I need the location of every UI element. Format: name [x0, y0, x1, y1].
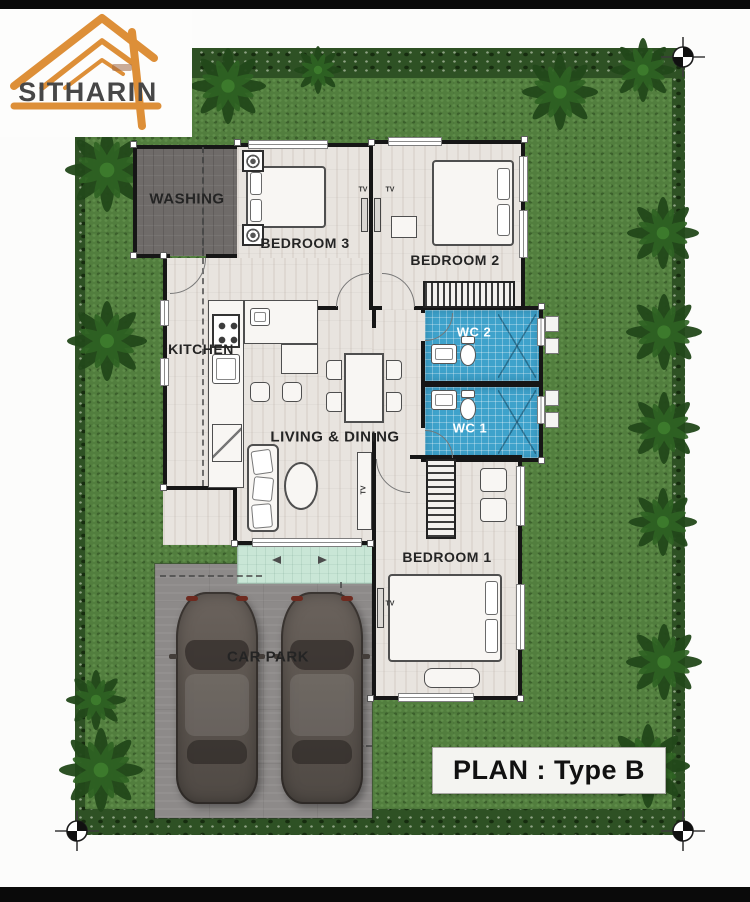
pillow — [485, 581, 498, 615]
car-icon — [176, 592, 258, 804]
roof-overhang-line — [160, 575, 262, 577]
wall — [206, 254, 237, 258]
car-rear-window — [292, 740, 352, 764]
window — [516, 584, 525, 650]
car-mirror — [169, 654, 177, 659]
plan-type-badge: PLAN : Type B — [432, 747, 666, 794]
wall-junction — [130, 252, 137, 259]
pillow — [250, 199, 262, 222]
toilet-icon — [461, 390, 475, 398]
room-label-bedroom2: BEDROOM 2 — [410, 252, 499, 268]
chair-icon — [386, 360, 402, 380]
ac-unit-icon — [545, 316, 559, 332]
window — [248, 140, 328, 149]
coffee-table-icon — [284, 462, 318, 510]
tv-label: TV — [386, 601, 395, 608]
window — [519, 210, 528, 258]
sink-basin — [435, 394, 453, 406]
kitchen-island — [281, 344, 318, 374]
wall — [425, 381, 539, 387]
wall-junction — [521, 136, 528, 143]
window — [516, 466, 525, 526]
car-rear-window — [187, 740, 247, 764]
slide-arrow-icon — [318, 556, 327, 564]
chair-icon — [326, 360, 342, 380]
wall-junction — [368, 139, 375, 146]
sink-basin — [216, 358, 236, 380]
window — [160, 358, 169, 386]
pillow — [485, 619, 498, 653]
tv-label: TV — [359, 187, 368, 194]
wall-junction — [234, 139, 241, 146]
sink-basin — [254, 312, 266, 322]
window — [537, 396, 545, 424]
sofa-icon — [247, 444, 279, 532]
kitchen-sink-icon — [212, 354, 240, 384]
toilet-icon — [460, 344, 476, 366]
toilet-icon — [460, 398, 476, 420]
bench-icon — [424, 668, 480, 688]
logo-small-text — [112, 64, 132, 71]
room-label-washing: WASHING — [149, 191, 224, 208]
ac-unit-icon — [545, 390, 559, 406]
wall — [133, 145, 237, 149]
slide-arrow-icon — [272, 556, 281, 564]
wall-junction — [160, 484, 167, 491]
dining-table-icon — [344, 353, 384, 423]
window — [388, 137, 442, 146]
tv-stand-icon — [391, 216, 417, 238]
room-label-wc2: WC 2 — [457, 325, 492, 340]
room-label-bedroom1: BEDROOM 1 — [402, 549, 491, 565]
plan-type-text: PLAN : Type B — [453, 755, 645, 786]
chair-icon — [326, 392, 342, 412]
terrace — [237, 545, 375, 584]
pillow — [497, 204, 510, 236]
floorplan-image: WASHING BEDROOM 3 BEDROOM 2 KITCHEN LIVI… — [0, 0, 750, 902]
room-label-bedroom3: BEDROOM 3 — [260, 235, 349, 251]
sliding-door-window — [252, 538, 362, 547]
tv-label: TV — [386, 187, 395, 194]
sink-icon — [431, 390, 457, 410]
pillow — [497, 168, 510, 200]
stool-icon — [250, 382, 270, 402]
chair-icon — [480, 498, 507, 522]
car-roof — [185, 674, 249, 736]
tv-label: TV — [361, 486, 368, 495]
sink-basin — [435, 348, 453, 360]
wall — [372, 306, 376, 328]
window — [537, 318, 545, 346]
car-taillight — [341, 596, 353, 601]
wall-junction — [160, 252, 167, 259]
wall — [237, 541, 252, 545]
ac-unit-icon — [545, 338, 559, 354]
room-label-wc1: WC 1 — [453, 421, 488, 436]
car-icon — [281, 592, 363, 804]
wall-junction — [130, 141, 137, 148]
wall-junction — [538, 457, 545, 464]
shower-icon — [498, 314, 536, 378]
window — [519, 156, 528, 202]
wall-junction — [517, 695, 524, 702]
sitharin-logo: SITHARIN — [2, 2, 192, 142]
room-label-carpark: CAR PARK — [227, 649, 309, 666]
tv-icon — [361, 198, 368, 232]
wall — [233, 486, 237, 545]
car-mirror — [362, 654, 370, 659]
wall — [372, 455, 376, 700]
window — [160, 300, 169, 326]
tv-icon — [377, 588, 384, 628]
car-roof — [290, 674, 354, 736]
wall-junction — [367, 540, 374, 547]
sofa-cushion — [251, 503, 273, 529]
sofa-cushion — [250, 449, 273, 476]
wall-junction — [538, 303, 545, 310]
island-sink-icon — [250, 308, 270, 326]
wall-junction — [367, 695, 374, 702]
car-taillight — [236, 596, 248, 601]
fridge-icon — [212, 424, 242, 462]
letterbox-top — [0, 0, 750, 9]
washer-icon — [242, 150, 264, 172]
car-taillight — [186, 596, 198, 601]
tv-icon — [374, 198, 381, 232]
sofa-cushion — [252, 476, 274, 502]
stool-icon — [282, 382, 302, 402]
wall-junction — [231, 540, 238, 547]
wardrobe-icon — [423, 281, 515, 308]
chair-icon — [386, 392, 402, 412]
car-taillight — [291, 596, 303, 601]
pillow — [250, 172, 262, 195]
room-label-kitchen: KITCHEN — [168, 341, 234, 357]
shower-icon — [498, 390, 536, 454]
chair-icon — [480, 468, 507, 492]
logo-brand-text: SITHARIN — [18, 77, 158, 107]
sink-icon — [431, 344, 457, 364]
room-label-living: LIVING & DINING — [270, 429, 399, 446]
letterbox-bottom — [0, 887, 750, 902]
ac-unit-icon — [545, 412, 559, 428]
window — [398, 693, 474, 702]
wall — [133, 145, 137, 258]
wardrobe-icon — [426, 459, 456, 539]
